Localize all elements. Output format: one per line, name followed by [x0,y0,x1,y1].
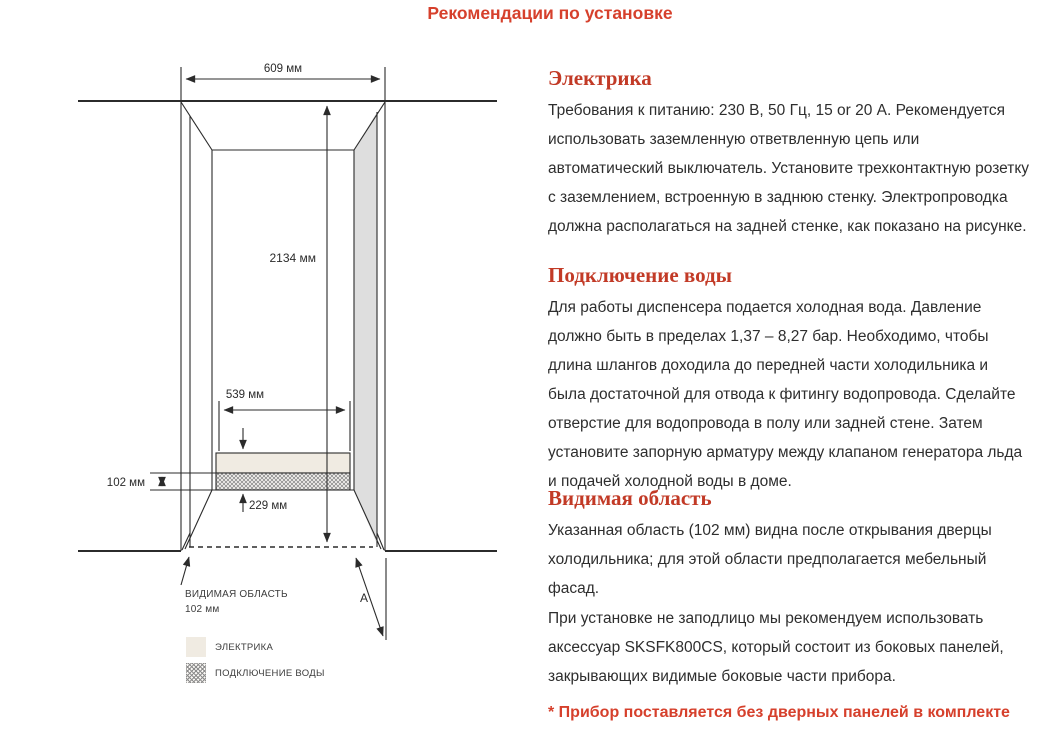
dim-229-label: 229 мм [249,500,287,512]
section-heading-electrics: Электрика [548,66,1038,91]
electrics-zone [216,453,350,473]
footnote: * Прибор поставляется без дверных панеле… [548,704,1053,722]
electrics-swatch-icon [186,637,206,657]
visible-area-label-line1: ВИДИМАЯ ОБЛАСТЬ [185,589,288,600]
dim-609-label: 609 мм [264,63,302,75]
section-heading-water: Подключение воды [548,263,1038,288]
dimension-visible-depth: 102 мм [107,473,216,490]
section-body-electrics: Требования к питанию: 230 В, 50 Гц, 15 o… [548,96,1030,241]
legend-item-water: ПОДКЛЮЧЕНИЕ ВОДЫ [186,663,325,683]
water-connection-zone [216,473,350,490]
dim-2134-label: 2134 мм [269,251,316,265]
dimension-top-width: 609 мм [181,63,385,100]
dim-539-label: 539 мм [226,389,264,401]
legend-item-electrics: ЭЛЕКТРИКА [186,637,273,657]
visible-side-panel [354,112,377,544]
dim-102-label: 102 мм [107,477,145,489]
water-hatch-swatch-icon [186,663,206,683]
dimension-bottom-offset: 229 мм [243,494,287,512]
section-body-visible-area: Указанная область (102 мм) видна после о… [548,516,1030,603]
marker-a-label: А [360,591,368,605]
visible-area-callout: ВИДИМАЯ ОБЛАСТЬ 102 мм [181,557,288,615]
legend-label: ЭЛЕКТРИКА [215,642,273,653]
section-body-water: Для работы диспенсера подается холодная … [548,293,1030,496]
dimension-inner-width: 539 мм [219,389,350,451]
legend-label: ПОДКЛЮЧЕНИЕ ВОДЫ [215,668,325,679]
installation-diagram: 609 мм 2134 мм 539 мм 102 мм 229 мм [0,0,530,710]
section-heading-visible-area: Видимая область [548,486,1038,511]
section-body-visible-area-2: При установке не заподлицо мы рекомендуе… [548,604,1030,691]
marker-a-callout: А [356,558,386,640]
installation-page: Рекомендации по установке [0,0,1061,743]
visible-area-label-line2: 102 мм [185,604,219,615]
